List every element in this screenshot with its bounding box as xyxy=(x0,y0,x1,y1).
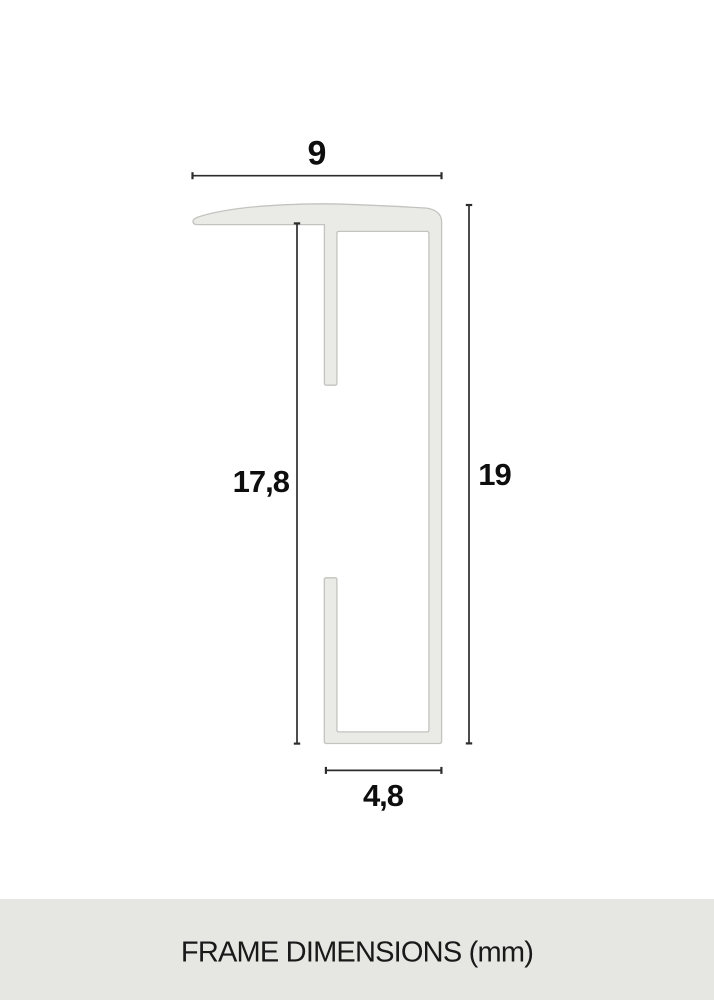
svg-text:4,8: 4,8 xyxy=(363,778,404,813)
svg-text:19: 19 xyxy=(478,457,511,492)
svg-text:9: 9 xyxy=(308,134,326,172)
svg-text:17,8: 17,8 xyxy=(233,464,290,499)
svg-text:FRAME DIMENSIONS (mm): FRAME DIMENSIONS (mm) xyxy=(181,937,533,969)
